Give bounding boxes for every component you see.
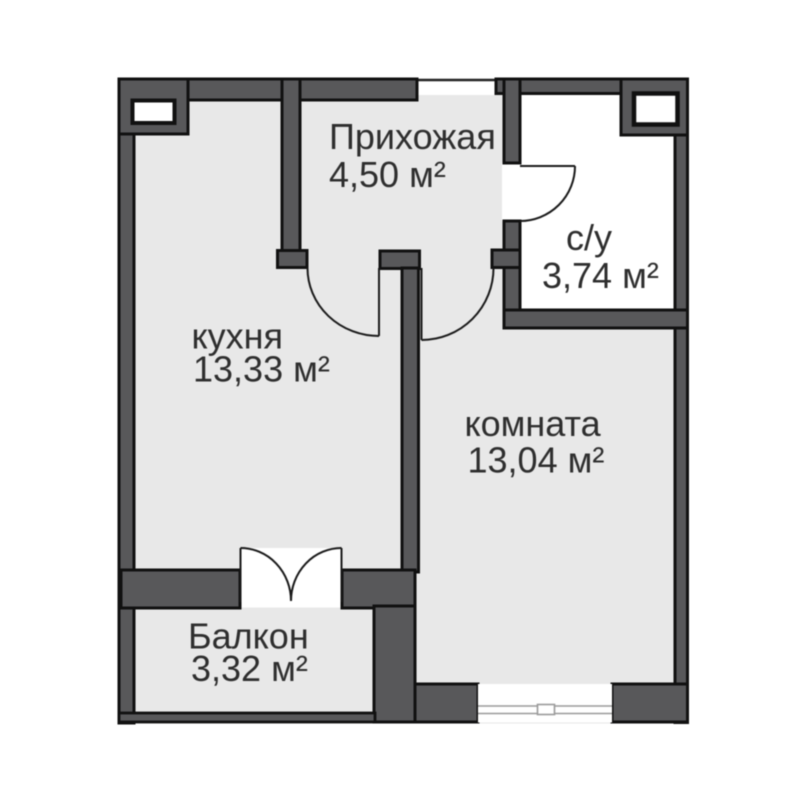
svg-text:комната: комната xyxy=(465,403,602,444)
svg-text:с/у: с/у xyxy=(566,217,612,258)
svg-text:3,32 м²: 3,32 м² xyxy=(191,648,308,689)
svg-text:13,04 м²: 13,04 м² xyxy=(468,440,605,481)
svg-text:Прихожая: Прихожая xyxy=(329,116,496,157)
svg-text:4,50 м²: 4,50 м² xyxy=(329,154,446,195)
svg-text:13,33 м²: 13,33 м² xyxy=(193,349,330,390)
svg-text:3,74 м²: 3,74 м² xyxy=(542,255,659,296)
